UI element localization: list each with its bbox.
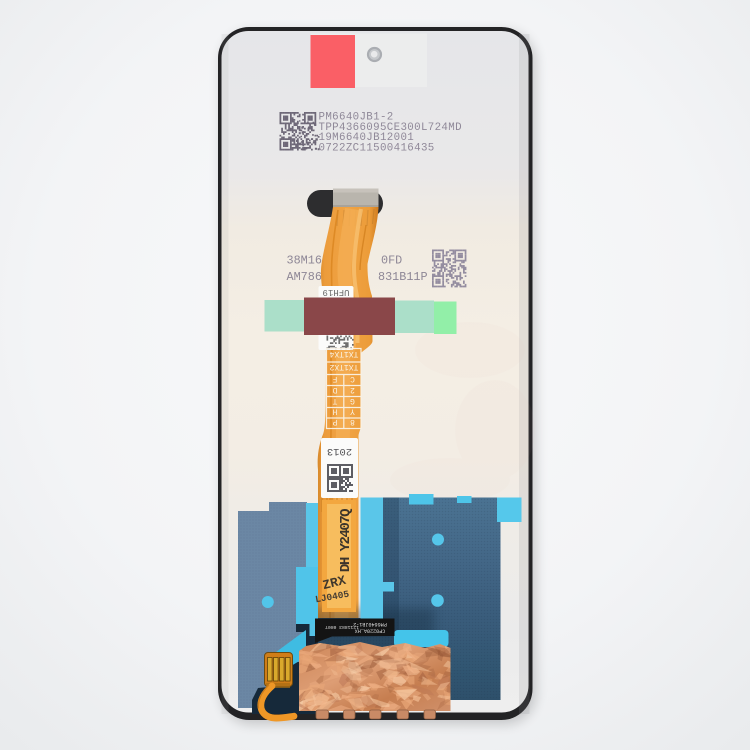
svg-text:G: G: [350, 396, 355, 405]
svg-text:TX1TX2: TX1TX2: [329, 362, 358, 371]
svg-text:C: C: [350, 374, 355, 383]
svg-text:1211883 0807: 1211883 0807: [325, 624, 359, 630]
svg-text:P: P: [332, 417, 337, 426]
svg-text:2: 2: [350, 385, 355, 394]
svg-text:UFH19: UFH19: [322, 287, 349, 297]
svg-text:0722ZC11500416435: 0722ZC11500416435: [319, 143, 435, 155]
svg-text:H: H: [332, 406, 337, 415]
svg-text:TX1TX4: TX1TX4: [329, 349, 358, 358]
svg-text:F: F: [332, 374, 337, 383]
svg-text:DH Y2407Q: DH Y2407Q: [338, 509, 354, 572]
svg-text:831B11P: 831B11P: [378, 270, 428, 284]
svg-text:0FD: 0FD: [381, 254, 402, 268]
svg-text:Y: Y: [350, 406, 355, 415]
svg-text:D: D: [332, 385, 337, 394]
svg-text:T: T: [332, 396, 337, 405]
svg-text:8: 8: [350, 417, 355, 426]
svg-text:2013: 2013: [327, 445, 352, 457]
